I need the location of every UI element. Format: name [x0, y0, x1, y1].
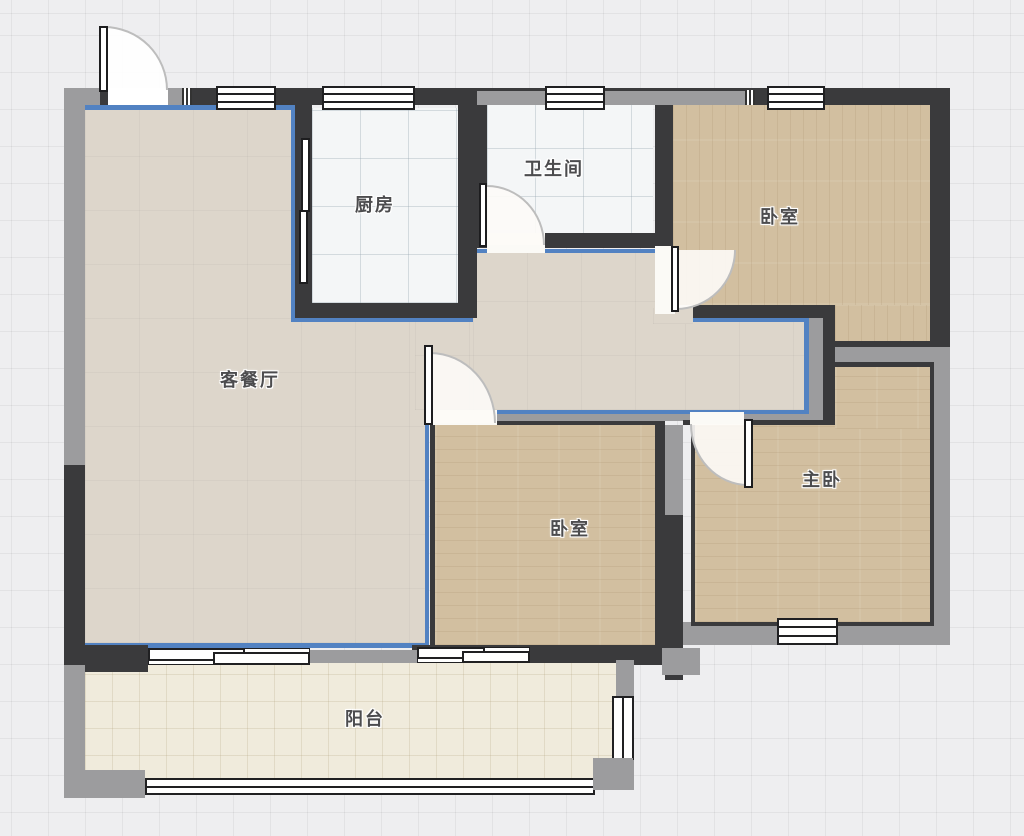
outer-wall-left [64, 88, 85, 465]
wall-segment [809, 318, 823, 425]
hallway-floor [473, 253, 655, 410]
bathroom-door-leaf [479, 183, 487, 247]
wall-segment [82, 645, 148, 672]
wall-segment [665, 425, 683, 517]
bedroom-mid-floor [435, 425, 655, 645]
bedroom-mid-balcony-window [417, 647, 530, 663]
wall-hatch [182, 88, 192, 105]
entry-door-opening [108, 88, 168, 105]
wall-segment [64, 770, 145, 798]
window-top [216, 86, 276, 110]
bathroom-wall-south [545, 233, 655, 248]
bedroom-top-door-leaf [671, 246, 679, 312]
window-top [322, 86, 415, 110]
master-bedroom-label: 主卧 [802, 471, 842, 489]
window-top [767, 86, 825, 110]
master-window [777, 618, 838, 645]
kitchen-sliding-door [301, 138, 310, 212]
outer-wall-right [930, 88, 950, 347]
wall-segment [310, 650, 417, 663]
bedroom-top-wall-south [693, 305, 835, 318]
balcony-sliding-door [148, 648, 310, 665]
kitchen-wall-south [295, 303, 477, 318]
bathroom-label: 卫生间 [524, 160, 584, 178]
balcony-railing [145, 778, 595, 795]
bedroom-mid-label: 卧室 [550, 520, 590, 538]
kitchen-sliding-door [299, 210, 308, 284]
master-door-leaf [744, 419, 753, 488]
balcony-label: 阳台 [345, 710, 385, 728]
outer-wall-right [932, 347, 950, 645]
bedroom-top-wall-west [655, 96, 673, 248]
kitchen-label: 厨房 [355, 196, 395, 214]
entry-door-leaf [99, 26, 108, 92]
wall-hatch [745, 90, 755, 105]
master-wall-north [751, 420, 823, 425]
master-bedroom-floor [835, 367, 930, 429]
wall-segment [64, 88, 100, 105]
wall-segment [477, 91, 745, 105]
floor-plan-canvas: 厨房 卫生间 卧室 客餐厅 卧室 主卧 阳台 [0, 0, 1024, 836]
wall-segment [593, 758, 633, 790]
outer-wall-left [64, 465, 85, 665]
bedroom-top-label: 卧室 [760, 208, 800, 226]
wall-segment [168, 88, 182, 105]
living-dining-label: 客餐厅 [220, 371, 280, 389]
wall-segment [662, 648, 700, 675]
entry-door-swing [104, 26, 168, 90]
balcony-window-east [612, 696, 634, 760]
window-top [545, 86, 605, 110]
bedroom-mid-door-leaf [424, 345, 433, 425]
